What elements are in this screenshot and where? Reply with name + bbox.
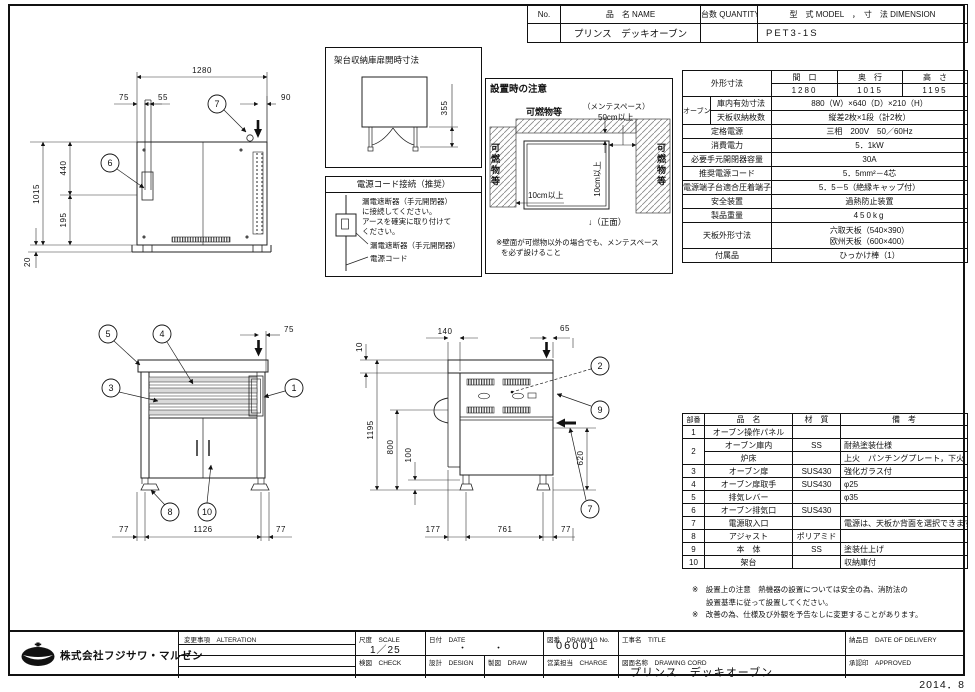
dim-1195: 1195: [366, 420, 375, 439]
dim-440: 440: [59, 161, 68, 176]
spec-traydim-label: 天板外形寸法: [683, 223, 772, 249]
top-view-drawing: 1280 75 55 90 1015 440 195 20 6 7: [15, 55, 330, 290]
parts-header-name: 品 名: [705, 414, 793, 426]
footnote-1: ※ 設置上の注意 熱機器の設置については安全の為、消防法の: [692, 584, 964, 597]
header-no-label: No.: [528, 5, 561, 24]
spec-acc-value: ひっかけ棒（1）: [772, 249, 968, 263]
spec-safety-label: 安全装置: [683, 195, 772, 209]
clearance-10cm-h-label: 10cm以上: [528, 191, 564, 200]
clearance-10cm-v-label: 10cm以上: [593, 161, 602, 197]
dim-77-right: 77: [276, 525, 286, 534]
caution-title: 設置時の注意: [490, 83, 548, 95]
stand-door-open-figure: 355: [326, 70, 481, 167]
svg-text:3: 3: [108, 383, 113, 393]
header-name-value: プリンス デッキオーブン: [561, 24, 701, 43]
header-model-value: PET3-1S: [758, 24, 968, 43]
dim-20: 20: [23, 257, 32, 267]
dim-65: 65: [560, 324, 570, 333]
spec-breaker-value: 30A: [772, 153, 968, 167]
spec-cord-value: 5．5mm²－4芯: [772, 167, 968, 181]
parts-row: 10架台収納庫付: [683, 556, 968, 569]
svg-text:10: 10: [202, 507, 212, 517]
spec-oven-label: オーブン: [683, 97, 711, 125]
drawing-name-value: プリンス デッキオーブン: [630, 664, 773, 680]
parts-row: 2オーブン庫内SS耐熱塗装仕様: [683, 439, 968, 452]
title-block: 株式会社フジサワ・マルゼン 変更事項 ALTERATION 尺度 SCALE 1…: [8, 630, 965, 676]
callout-9: 9: [557, 394, 609, 419]
parts-row: 6オーブン排気口SUS430: [683, 504, 968, 517]
spec-terminal-value: 5．5－5（絶縁キャップ付）: [772, 181, 968, 195]
power-cord-box: 電源コード接続（推奨） 漏電遮断器（手元開閉器） に接続してください。 アースを…: [325, 176, 482, 277]
combustible-left-label: 可燃物等: [489, 143, 502, 187]
header-qty-value: [701, 24, 758, 43]
breaker-label: 漏電遮断器（手元開閉器）: [370, 240, 460, 251]
power-inlet: [247, 135, 253, 141]
header-no-value: [528, 24, 561, 43]
project-title-label: 工事名 TITLE: [622, 634, 666, 644]
parts-row: 炉床上火 パンチングプレート，下火 SS: [683, 452, 968, 465]
power-cord-title: 電源コード接続（推奨）: [326, 177, 481, 193]
spec-rated-value: 三相 200V 50／60Hz: [772, 125, 968, 139]
footnote-3: ※ 改善の為、仕様及び外観を予告なしに変更することがあります。: [692, 609, 964, 622]
callout-7: 7: [570, 428, 599, 518]
dim-100: 100: [404, 448, 413, 463]
dim-77: 77: [561, 525, 571, 534]
spec-traydim-value: 六取天板（540×390） 欧州天板（600×400）: [772, 223, 968, 249]
company-name: 株式会社フジサワ・マルゼン: [60, 648, 203, 663]
spec-terminal-label: 電源端子台適合圧着端子: [683, 181, 772, 195]
parts-table: 部番 品 名 材 質 備 考 1オーブン操作パネル 2オーブン庫内SS耐熱塗装仕…: [682, 413, 968, 569]
spec-inner-label: 庫内有効寸法: [711, 97, 772, 111]
power-inlet-arrow-icon: [254, 120, 262, 138]
parts-row: 9本 体SS塗装仕上げ: [683, 543, 968, 556]
svg-text:7: 7: [214, 99, 219, 109]
spec-rated-label: 定格電源: [683, 125, 772, 139]
vent-slot: [172, 237, 230, 242]
vent-column: [253, 152, 263, 234]
caution-figure: 設置時の注意 可燃物等 （メンテスペース） 50cm以上 10cm以上 10cm…: [486, 79, 672, 273]
cord-label: 電源コード: [370, 253, 408, 264]
spec-depth-label: 奥 行: [838, 71, 903, 84]
callout-5: 5: [99, 325, 140, 365]
parts-row: 8アジャストポリアミド: [683, 530, 968, 543]
spec-acc-label: 付属品: [683, 249, 772, 263]
check-label: 検図 CHECK: [359, 657, 401, 667]
svg-text:2: 2: [597, 361, 602, 371]
callout-1: 1: [264, 379, 303, 397]
header-name-label: 品 名 NAME: [561, 5, 701, 24]
spec-cord-label: 推奨電源コード: [683, 167, 772, 181]
maintenance-space-label: （メンテスペース）: [583, 102, 650, 111]
top-power-arrow-icon: [255, 340, 263, 357]
dim-800: 800: [386, 440, 395, 455]
alteration-label: 変更事項 ALTERATION: [184, 634, 256, 644]
side-view-drawing: 140 65 10 1195 800 100 620 177 761 77 2 …: [345, 318, 657, 563]
approved-label: 承認印 APPROVED: [849, 657, 911, 667]
svg-text:4: 4: [159, 329, 164, 339]
spec-power-label: 消費電力: [683, 139, 772, 153]
company-block: 株式会社フジサワ・マルゼン: [20, 642, 203, 668]
adjuster-foot-front: [460, 484, 473, 490]
parts-header-no: 部番: [683, 414, 705, 426]
dim-195: 195: [59, 213, 68, 228]
svg-text:7: 7: [587, 504, 592, 514]
caution-note-1: ※壁面が可燃物以外の場合でも、メンテスペース: [496, 237, 659, 247]
dim-1126: 1126: [193, 525, 212, 534]
spec-height-label: 高 さ: [903, 71, 968, 84]
dim-140: 140: [438, 327, 453, 336]
date-value: ・ ・: [458, 641, 503, 654]
rear-power-arrow-icon: [543, 342, 551, 359]
callout-7: 7: [208, 95, 246, 132]
clearance-50cm-label: 50cm以上: [598, 113, 634, 122]
company-logo-icon: [20, 642, 56, 668]
drawing-sheet: No. 品 名 NAME 台数 QUANTITY 型 式 MODEL ， 寸 法…: [0, 0, 975, 692]
parts-row: 3オーブン扉SUS430強化ガラス付: [683, 465, 968, 478]
spec-traydim-line2: 欧州天板（600×400）: [830, 237, 909, 246]
dim-90: 90: [281, 93, 291, 102]
svg-text:6: 6: [107, 158, 112, 168]
parts-row: 4オーブン扉取手SUS430φ25: [683, 478, 968, 491]
spec-breaker-label: 必要手元開閉器容量: [683, 153, 772, 167]
spec-power-value: 5．1kW: [772, 139, 968, 153]
spec-inner-value: 880（W）×640（D）×210（H）: [772, 97, 968, 111]
dim-761: 761: [498, 525, 513, 534]
svg-text:5: 5: [105, 329, 110, 339]
spec-width-value: 1280: [772, 84, 838, 97]
parts-row: 7電源取入口電源は、天板か背面を選択できます: [683, 517, 968, 530]
installation-caution-box: 設置時の注意 可燃物等 （メンテスペース） 50cm以上 10cm以上 10cm…: [485, 78, 673, 274]
spec-depth-value: 1015: [838, 84, 903, 97]
svg-text:1: 1: [291, 383, 296, 393]
svg-text:8: 8: [167, 507, 172, 517]
adjuster-foot-left: [141, 484, 159, 490]
svg-text:9: 9: [597, 405, 602, 415]
combustible-top-label: 可燃物等: [526, 106, 562, 117]
parts-header-mat: 材 質: [793, 414, 841, 426]
adjuster-foot-rear: [537, 484, 550, 490]
drawing-no-value: 06001: [556, 640, 597, 652]
dim-77-left: 77: [119, 525, 129, 534]
spec-width-label: 間 口: [772, 71, 838, 84]
scale-value: 1／25: [370, 641, 401, 656]
footnote-2: 設置基準に従って設置してください。: [692, 597, 964, 610]
dim-355: 355: [440, 101, 449, 116]
spec-traydim-line1: 六取天板（540×390）: [830, 226, 909, 235]
dim-1280: 1280: [192, 66, 212, 75]
draw-label: 製図 DRAW: [488, 657, 527, 667]
spec-height-value: 1195: [903, 84, 968, 97]
spec-tray-value: 縦差2枚×1段（計2枚）: [772, 111, 968, 125]
spec-outer-label: 外形寸法: [683, 71, 772, 97]
dim-10: 10: [355, 342, 364, 352]
spec-table: 外形寸法 間 口 奥 行 高 さ 1280 1015 1195 オーブン 庫内有…: [682, 70, 968, 263]
exhaust-lever: [434, 398, 448, 423]
parts-row: 1オーブン操作パネル: [683, 426, 968, 439]
parts-row: 5排気レバーφ35: [683, 491, 968, 504]
spec-weight-value: 450kg: [772, 209, 968, 223]
combustible-right-label: 可燃物等: [655, 143, 668, 187]
parts-header-note: 備 考: [841, 414, 968, 426]
header-qty-label: 台数 QUANTITY: [701, 5, 758, 24]
power-text-4: ください。: [362, 226, 400, 237]
stand-door-open-title: 架台収納庫扉開時寸法: [334, 54, 419, 66]
delivery-label: 納品日 DATE OF DELIVERY: [849, 634, 937, 644]
front-side-label: ↓（正面）: [588, 217, 626, 227]
side-power-arrow-icon: [556, 419, 576, 428]
dim-75: 75: [284, 325, 294, 334]
footnotes: ※ 設置上の注意 熱機器の設置については安全の為、消防法の 設置基準に従って設置…: [692, 584, 964, 622]
spec-safety-value: 過熱防止装置: [772, 195, 968, 209]
dim-620: 620: [576, 451, 585, 466]
dim-55: 55: [158, 93, 168, 102]
header-table: No. 品 名 NAME 台数 QUANTITY 型 式 MODEL ， 寸 法…: [527, 4, 968, 43]
callout-8: 8: [151, 490, 179, 521]
stand-door-open-box: 架台収納庫扉開時寸法 355: [325, 47, 482, 168]
dim-177: 177: [426, 525, 441, 534]
date-stamp: 2014．8: [880, 677, 965, 692]
adjuster-foot-right: [251, 484, 269, 490]
dim-75: 75: [119, 93, 129, 102]
spec-tray-label: 天板収納枚数: [711, 111, 772, 125]
spec-weight-label: 製品重量: [683, 209, 772, 223]
charge-label: 営業担当 CHARGE: [547, 657, 607, 667]
caution-note-2: を必ず設けること: [501, 247, 561, 257]
dim-1015: 1015: [32, 184, 41, 204]
header-model-label: 型 式 MODEL ， 寸 法 DIMENSION: [758, 5, 968, 24]
front-view-drawing: 75 77 1126 77 5 4 3 1 8: [70, 318, 325, 560]
design-label: 設計 DESIGN: [429, 657, 473, 667]
